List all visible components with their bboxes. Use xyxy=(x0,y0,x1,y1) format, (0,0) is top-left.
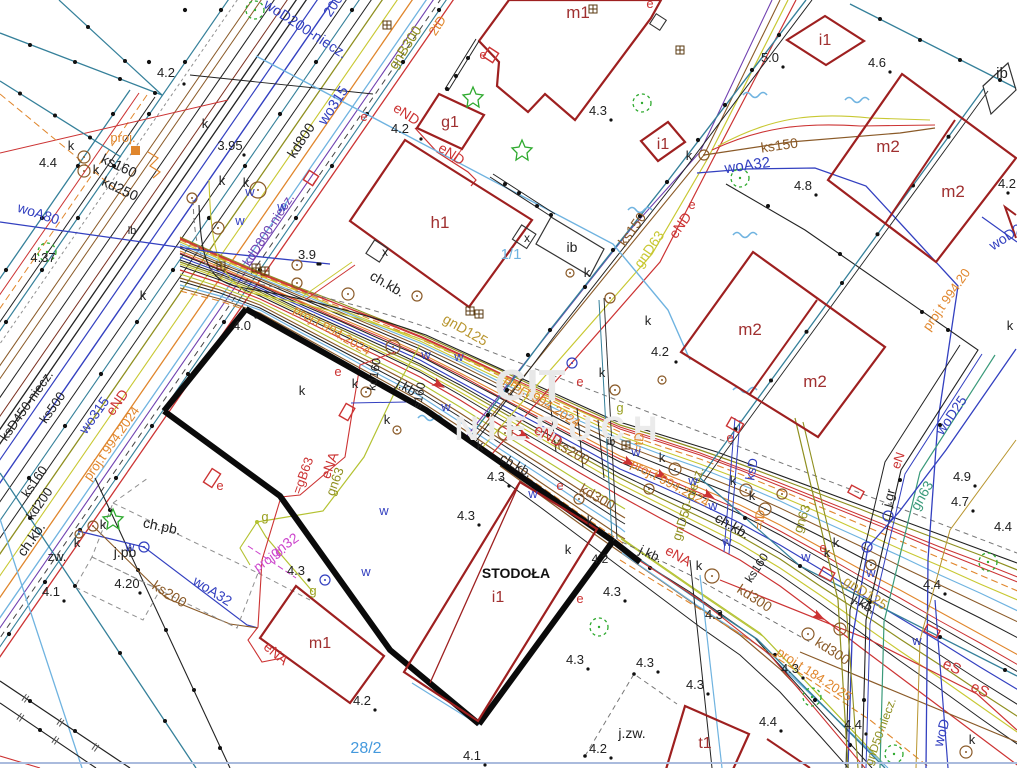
svg-text:w: w xyxy=(707,498,718,513)
svg-text:m1: m1 xyxy=(566,3,590,22)
svg-text:4.4: 4.4 xyxy=(39,155,57,170)
svg-text:w: w xyxy=(378,503,389,518)
svg-text:lb: lb xyxy=(128,225,137,237)
svg-text:w: w xyxy=(420,347,431,362)
svg-text:i1: i1 xyxy=(819,32,832,49)
svg-text:4.3: 4.3 xyxy=(686,677,704,692)
svg-text:4.4: 4.4 xyxy=(759,714,777,729)
svg-text:4.3: 4.3 xyxy=(589,103,607,118)
svg-text:g1: g1 xyxy=(441,114,459,131)
svg-text:STODOŁA: STODOŁA xyxy=(482,565,550,581)
svg-text:m2: m2 xyxy=(941,182,965,201)
svg-text:e: e xyxy=(576,374,583,389)
svg-text:x: x xyxy=(524,231,530,245)
svg-text:4.7: 4.7 xyxy=(951,494,969,509)
svg-text:k: k xyxy=(68,138,75,153)
svg-text:k: k xyxy=(100,517,107,532)
svg-text:k: k xyxy=(659,450,666,465)
svg-text:4.2: 4.2 xyxy=(589,741,607,756)
svg-text:w: w xyxy=(800,549,811,564)
svg-text:k: k xyxy=(384,412,391,427)
svg-text:k: k xyxy=(299,383,306,398)
svg-text:e: e xyxy=(726,430,733,445)
svg-text:k: k xyxy=(219,173,226,188)
svg-text:g: g xyxy=(616,400,623,415)
svg-text:m1: m1 xyxy=(309,635,331,652)
svg-text:k: k xyxy=(1007,318,1014,333)
svg-text:4.4: 4.4 xyxy=(994,519,1012,534)
svg-text:w: w xyxy=(721,534,732,549)
svg-text:4.2: 4.2 xyxy=(157,65,175,80)
svg-text:proj.: proj. xyxy=(110,130,135,145)
svg-text:w: w xyxy=(527,486,538,501)
svg-text:w: w xyxy=(234,213,245,228)
svg-text:ib: ib xyxy=(607,436,616,448)
svg-text:4.4: 4.4 xyxy=(844,717,862,732)
svg-text:e: e xyxy=(819,540,826,555)
svg-text:4.3: 4.3 xyxy=(781,661,799,676)
svg-text:i1: i1 xyxy=(492,589,505,606)
svg-text:k: k xyxy=(686,148,693,163)
svg-text:4.6: 4.6 xyxy=(868,55,886,70)
svg-text:w: w xyxy=(630,444,641,459)
svg-text:k: k xyxy=(969,732,976,747)
svg-text:e: e xyxy=(216,478,223,493)
svg-text:i1: i1 xyxy=(657,136,670,153)
svg-text:e: e xyxy=(556,478,563,493)
svg-text:4.2: 4.2 xyxy=(651,344,669,359)
svg-text:e: e xyxy=(646,0,653,11)
svg-text:h1: h1 xyxy=(431,213,450,232)
svg-text:4.8: 4.8 xyxy=(794,178,812,193)
svg-text:k: k xyxy=(352,376,359,391)
svg-text:w: w xyxy=(276,199,287,214)
svg-text:k: k xyxy=(696,558,703,573)
svg-text:4.3: 4.3 xyxy=(487,469,505,484)
svg-text:w: w xyxy=(453,349,464,364)
svg-text:k: k xyxy=(477,438,484,453)
svg-text:e: e xyxy=(479,47,486,62)
svg-text:k: k xyxy=(833,535,840,550)
svg-text:e: e xyxy=(576,591,583,606)
svg-text:k: k xyxy=(584,265,591,280)
svg-text:4.37: 4.37 xyxy=(30,250,55,265)
svg-text:3.95: 3.95 xyxy=(217,138,242,153)
svg-text:4.9: 4.9 xyxy=(953,469,971,484)
svg-text:5.0: 5.0 xyxy=(761,50,779,65)
svg-text:4.3: 4.3 xyxy=(457,508,475,523)
svg-text:g: g xyxy=(261,509,268,524)
svg-text:m2: m2 xyxy=(876,137,900,156)
svg-text:m2: m2 xyxy=(738,320,762,339)
svg-text:4.3: 4.3 xyxy=(287,563,305,578)
svg-text:3.9: 3.9 xyxy=(298,247,316,262)
svg-text:w: w xyxy=(865,565,876,580)
svg-text:28/2: 28/2 xyxy=(350,740,381,757)
svg-text:4.20: 4.20 xyxy=(114,576,139,591)
svg-text:4.1: 4.1 xyxy=(463,748,481,763)
svg-text:e: e xyxy=(334,364,341,379)
svg-text:4.3: 4.3 xyxy=(603,584,621,599)
svg-text:k: k xyxy=(202,116,209,131)
svg-text:4.3: 4.3 xyxy=(705,607,723,622)
svg-text:4.3: 4.3 xyxy=(566,652,584,667)
svg-text:1/1: 1/1 xyxy=(501,246,522,263)
svg-text:j.zw.: j.zw. xyxy=(617,725,645,741)
svg-text:w: w xyxy=(440,399,451,414)
svg-text:k: k xyxy=(93,162,100,177)
svg-text:=lD: =lD xyxy=(751,509,768,530)
svg-text:k: k xyxy=(645,313,652,328)
svg-text:w: w xyxy=(687,473,698,488)
svg-text:m2: m2 xyxy=(803,372,827,391)
svg-text:e: e xyxy=(688,197,695,212)
svg-text:ib: ib xyxy=(567,239,578,255)
svg-text:4.2: 4.2 xyxy=(592,552,609,566)
svg-text:ib: ib xyxy=(996,65,1008,82)
svg-text:t1: t1 xyxy=(698,735,711,752)
svg-text:w: w xyxy=(911,633,922,648)
svg-text:4.1: 4.1 xyxy=(42,584,60,599)
svg-text:w: w xyxy=(360,564,371,579)
svg-text:w: w xyxy=(124,539,135,554)
svg-text:4.2: 4.2 xyxy=(391,121,409,136)
svg-text:k: k xyxy=(140,288,147,303)
svg-text:4.2: 4.2 xyxy=(353,693,371,708)
svg-text:x: x xyxy=(382,245,388,259)
svg-text:zw.: zw. xyxy=(48,549,67,564)
svg-text:4.0: 4.0 xyxy=(233,318,251,333)
svg-text:k: k xyxy=(749,488,756,503)
svg-text:e: e xyxy=(360,109,367,124)
svg-text:k: k xyxy=(599,365,606,380)
svg-text:w: w xyxy=(244,184,255,199)
svg-text:k: k xyxy=(730,473,737,488)
svg-text:4.3: 4.3 xyxy=(636,655,654,670)
svg-text:4.4: 4.4 xyxy=(923,577,941,592)
svg-text:g: g xyxy=(309,583,316,598)
svg-text:k: k xyxy=(587,513,594,528)
svg-text:4.2: 4.2 xyxy=(998,176,1016,191)
svg-text:k: k xyxy=(74,535,81,550)
svg-text:k: k xyxy=(565,542,572,557)
